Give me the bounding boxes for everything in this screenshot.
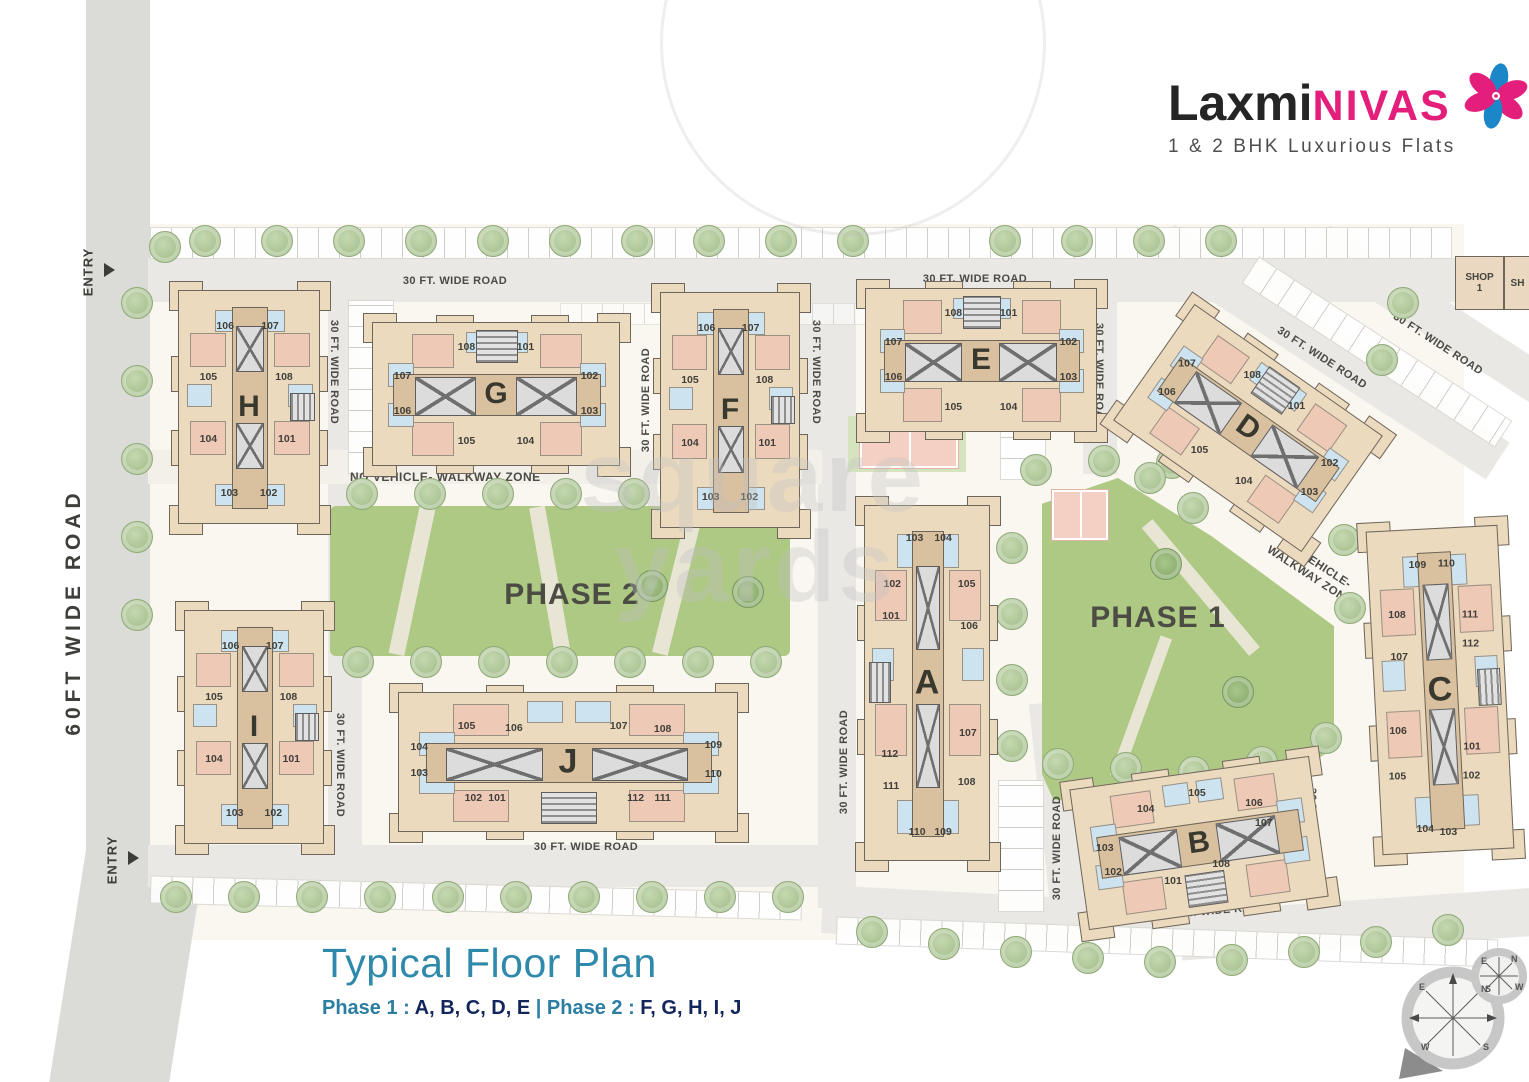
tree-icon [550,478,582,510]
phase1-legend-label: Phase 1 : [322,997,415,1019]
building-letter-h: H [238,390,260,424]
unit-number-108: 108 [1213,858,1231,870]
unit-number-105: 105 [458,720,476,732]
unit-number-108: 108 [458,341,476,353]
entry-label: ENTRY [81,248,96,297]
tree-icon [364,881,396,913]
unit-number-104: 104 [1137,803,1155,815]
room-blue [527,701,563,722]
unit-number-106: 106 [505,722,523,734]
brand-logo: LaxmiNIVAS 1 & 2 BHK Luxurious Flats [1168,74,1528,158]
room-blue [962,648,984,682]
tree-icon [410,646,442,678]
unit-number-101: 101 [278,433,296,445]
unit-number-101: 101 [882,610,900,622]
unit-number-109: 109 [934,826,952,838]
unit-number-101: 101 [1000,307,1018,319]
unit-number-105: 105 [200,371,218,383]
compass-letter: N [1511,954,1518,964]
tree-icon [996,598,1028,630]
unit-number-106: 106 [222,640,240,652]
brand-name-part2: NIVAS [1313,82,1451,130]
staircase [476,330,517,363]
entry-arrow-icon [104,263,115,277]
tree-icon [1042,748,1074,780]
tree-icon [621,225,653,257]
room-blue [669,387,693,410]
unit-number-107: 107 [610,720,628,732]
brand-tagline: 1 & 2 BHK Luxurious Flats [1168,136,1528,158]
tree-icon [704,881,736,913]
unit-number-103: 103 [221,487,239,499]
elevator-shaft [916,704,940,787]
watermark-circle [660,0,1046,236]
phase2-legend-label: | Phase 2 : [536,997,641,1019]
tree-icon [1133,225,1165,257]
staircase [771,396,795,424]
tree-icon [478,646,510,678]
road-label: 30 FT. WIDE ROAD [328,320,340,424]
unit-number-103: 103 [702,491,720,503]
tree-icon [1216,944,1248,976]
tree-icon [346,478,378,510]
tree-icon [482,478,514,510]
elevator-shaft [516,377,577,416]
road-label: 30 FT. WIDE ROAD [534,841,638,853]
tree-icon [1088,445,1120,477]
unit-number-112: 112 [627,792,644,804]
phase1-legend-buildings: A, B, C, D, E [415,997,536,1019]
tree-icon [996,730,1028,762]
tree-icon [1328,524,1360,556]
unit-number-104: 104 [411,741,429,753]
elevator-shaft [718,426,745,472]
unit-number-106: 106 [1159,386,1177,398]
building-letter-b: B [1186,825,1212,862]
road-label: 30 FT. WIDE ROAD [1051,796,1063,900]
tree-icon [160,881,192,913]
unit-number-105: 105 [1188,786,1206,798]
tree-icon [996,532,1028,564]
tree-icon [1205,225,1237,257]
tree-icon [149,231,181,263]
building-h: 106107105108104101103102H [178,290,320,524]
compass-letter: W [1421,1042,1430,1052]
staircase [290,393,314,421]
elevator-shaft [916,566,940,649]
building-letter-e: E [971,343,991,377]
unit-number-103: 103 [226,807,244,819]
staircase [295,713,319,741]
tree-icon [618,478,650,510]
room-pink [412,422,453,455]
road-label: 30 FT. WIDE ROAD [403,275,507,287]
unit-number-101: 101 [517,341,535,353]
unit-number-107: 107 [885,336,903,348]
room-pink [279,653,314,687]
elevator-shaft [236,326,263,372]
tree-icon [750,646,782,678]
unit-number-102: 102 [884,578,902,590]
building-g: 108101107102106103105104G [372,322,620,466]
unit-number-110: 110 [909,826,926,838]
tree-icon [121,521,153,553]
building-outline: 108101107102106103105104G [372,322,620,466]
unit-number-107: 107 [261,320,279,332]
building-outline: 108101107102106103105104E [865,288,1097,432]
building-letter-f: F [721,393,739,427]
unit-number-110: 110 [1438,558,1455,570]
unit-number-109: 109 [705,739,723,751]
plan-title: Typical Floor Plan [322,940,741,987]
building-i: 106107105108104101103102I [184,610,324,844]
unit-number-104: 104 [681,437,699,449]
unit-number-105: 105 [1389,770,1407,782]
tree-icon [996,664,1028,696]
building-f: 106107105108104101103102F [660,292,800,528]
unit-number-104: 104 [1416,823,1434,835]
tree-icon [414,478,446,510]
park-path [388,506,435,656]
elevator-shaft [999,343,1056,382]
elevator-shaft [1429,709,1458,786]
building-j: 105106107108104103109110102101112111J [398,692,738,832]
tree-icon [1000,936,1032,968]
unit-number-107: 107 [266,640,284,652]
tree-icon [228,881,260,913]
unit-number-103: 103 [1096,842,1114,854]
building-letter-a: A [915,664,940,703]
unit-number-108: 108 [275,371,293,383]
room-pink [190,333,226,367]
entry-label: ENTRY [105,836,120,885]
tree-icon [1150,548,1182,580]
unit-number-107: 107 [1255,817,1273,829]
tree-icon [928,928,960,960]
unit-number-111: 111 [654,792,670,804]
unit-number-101: 101 [488,792,506,804]
unit-number-104: 104 [1235,476,1253,488]
unit-number-106: 106 [1389,725,1407,737]
unit-number-104: 104 [934,532,952,544]
room-pink [540,422,581,455]
shop-unit: SH [1504,256,1529,310]
tree-icon [636,881,668,913]
tree-icon [1334,592,1366,624]
unit-number-106: 106 [1245,797,1263,809]
unit-number-111: 111 [1462,608,1478,620]
unit-number-101: 101 [1463,740,1481,752]
unit-number-107: 107 [959,727,977,739]
unit-number-106: 106 [698,322,716,334]
brand-name-part1: Laxmi [1168,75,1313,131]
unit-number-110: 110 [705,768,722,780]
unit-number-103: 103 [581,405,599,417]
room-pink [1246,859,1291,897]
tree-icon [121,365,153,397]
shop-label: SHOP1 [1465,272,1493,294]
unit-number-112: 112 [1462,637,1479,649]
building-letter-c: C [1427,670,1454,710]
unit-number-105: 105 [945,401,963,413]
staircase [869,662,891,703]
tree-icon [989,225,1021,257]
building-c: 109110108111107112106101105102104103C [1366,525,1515,855]
tree-icon [121,287,153,319]
elevator-shaft [242,646,269,692]
tree-icon [568,881,600,913]
tree-icon [614,646,646,678]
unit-number-105: 105 [205,691,223,703]
road-label: 30 FT. WIDE ROAD [810,320,822,424]
tree-icon [1072,942,1104,974]
unit-number-107: 107 [742,322,760,334]
building-a: 103104102105101106112107111108110109A [864,505,990,861]
tree-icon [1222,676,1254,708]
unit-number-108: 108 [1243,368,1261,380]
road-label: 30 FT. WIDE ROAD [838,710,850,814]
phase2-legend-buildings: F, G, H, I, J [640,997,741,1019]
phase2-label: PHASE 2 [504,578,639,612]
tree-icon [765,225,797,257]
shop-unit: SHOP1 [1455,256,1504,310]
tree-icon [549,225,581,257]
plan-phase-line: Phase 1 : A, B, C, D, E | Phase 2 : F, G… [322,997,741,1020]
compass-letter: E [1481,956,1487,966]
tree-icon [1177,492,1209,524]
plan-legend: Typical Floor Plan Phase 1 : A, B, C, D,… [322,940,741,1020]
room-blue [193,704,217,727]
tree-icon [121,599,153,631]
unit-number-104: 104 [517,435,535,447]
unit-number-102: 102 [1463,769,1481,781]
unit-number-102: 102 [581,370,599,382]
unit-number-105: 105 [958,578,976,590]
unit-number-108: 108 [654,723,672,735]
unit-number-102: 102 [265,807,283,819]
building-outline: 106107105108104101103102H [178,290,320,524]
unit-number-112: 112 [881,748,898,760]
tree-icon [1134,462,1166,494]
room-pink [1022,300,1061,333]
building-letter-g: G [484,377,507,411]
building-e: 108101107102106103105104E [865,288,1097,432]
tree-icon [693,225,725,257]
unit-number-103: 103 [906,532,924,544]
tree-icon [1061,225,1093,257]
tree-icon [732,576,764,608]
unit-number-105: 105 [458,435,476,447]
tree-icon [121,443,153,475]
room-blue [187,384,211,407]
room-pink [412,334,453,367]
staircase [963,296,1002,329]
shop-label: SH [1511,278,1525,289]
unit-number-107: 107 [1390,651,1408,663]
unit-number-108: 108 [1388,609,1406,621]
room-pink [1022,388,1061,421]
unit-number-109: 109 [1409,559,1427,571]
unit-number-102: 102 [260,487,278,499]
tree-icon [477,225,509,257]
tree-icon [837,225,869,257]
unit-number-102: 102 [1321,457,1339,469]
tree-icon [296,881,328,913]
tree-icon [342,646,374,678]
building-letter-i: I [250,710,258,744]
unit-number-101: 101 [1164,875,1182,887]
tree-icon [1387,287,1419,319]
unit-number-101: 101 [758,437,776,449]
tree-icon [432,881,464,913]
entry-arrow-icon [128,851,139,865]
room-blue [575,701,611,722]
tree-icon [1144,946,1176,978]
tree-icon [189,225,221,257]
unit-number-104: 104 [1000,401,1018,413]
flower-logo-icon [1462,62,1529,130]
elevator-shaft [236,423,263,469]
building-outline: 103104102105101106112107111108110109A [864,505,990,861]
unit-number-108: 108 [280,691,298,703]
unit-number-103: 103 [411,767,429,779]
tree-icon [1288,936,1320,968]
elevator-shaft [1423,583,1452,660]
room-pink [540,334,581,367]
building-letter-j: J [559,743,578,782]
unit-number-104: 104 [205,753,223,765]
phase1-label: PHASE 1 [1090,601,1225,635]
basketball-court [1052,490,1108,540]
room-pink [903,388,942,421]
unit-number-102: 102 [741,491,759,503]
unit-number-103: 103 [1301,485,1319,497]
tree-icon [1366,344,1398,376]
room-pink [196,653,231,687]
unit-number-107: 107 [1179,357,1197,369]
tree-icon [261,225,293,257]
unit-number-106: 106 [216,320,234,332]
unit-number-102: 102 [1105,866,1123,878]
elevator-shaft [905,343,962,382]
building-outline: 105106107108104103109110102101112111J [398,692,738,832]
elevator-shaft [242,743,269,789]
unit-number-107: 107 [394,370,412,382]
unit-number-106: 106 [394,405,412,417]
tree-icon [856,916,888,948]
left-road-label: 60FT WIDE ROAD [62,488,86,735]
unit-number-103: 103 [1060,371,1078,383]
tree-icon [682,646,714,678]
building-outline: 106107105108104101103102F [660,292,800,528]
unit-number-103: 103 [1440,825,1458,837]
unit-number-106: 106 [885,371,903,383]
road-label: 30 FT. WIDE ROAD [334,713,346,817]
tree-icon [636,570,668,602]
unit-number-102: 102 [465,792,483,804]
unit-number-108: 108 [945,307,963,319]
unit-number-108: 108 [756,374,774,386]
unit-number-104: 104 [200,433,218,445]
building-outline: 109110108111107112106101105102104103C [1366,525,1515,855]
parking-col-near-b [998,780,1044,912]
elevator-shaft [592,748,689,780]
compass-letter: E [1419,982,1425,992]
tree-icon [772,881,804,913]
elevator-shaft [415,377,476,416]
staircase [1184,870,1229,908]
tree-icon [500,881,532,913]
site-plan-page: PHASE 2 PHASE 1 NO VEHICLE- WALKWAY ZONE… [0,0,1529,1082]
room-pink [1122,876,1167,914]
unit-number-101: 101 [282,753,300,765]
compass-letter: S [1485,984,1491,994]
unit-number-106: 106 [960,620,978,632]
room-blue [1162,782,1191,807]
elevator-shaft [446,748,543,780]
room-pink [672,335,707,370]
unit-number-111: 111 [883,780,899,792]
compass-letter: S [1483,1042,1489,1052]
building-outline: 106107105108104101103102I [184,610,324,844]
room-pink [274,333,310,367]
elevator-shaft [718,328,745,374]
staircase [541,792,597,824]
compass-rose-icon: ENWSNSEW [1383,940,1529,1082]
tree-icon [333,225,365,257]
elevator-shaft [1118,829,1182,875]
tree-icon [405,225,437,257]
room-pink [903,300,942,333]
unit-number-105: 105 [1190,444,1208,456]
compass-letter: W [1515,982,1524,992]
room-pink [755,335,790,370]
tree-icon [546,646,578,678]
tree-icon [1020,454,1052,486]
unit-number-105: 105 [681,374,699,386]
unit-number-108: 108 [958,776,976,788]
unit-number-101: 101 [1288,400,1306,412]
road-label: 30 FT. WIDE ROAD [640,348,652,452]
unit-number-102: 102 [1060,336,1078,348]
room-blue [1381,660,1405,692]
staircase [1477,668,1502,707]
